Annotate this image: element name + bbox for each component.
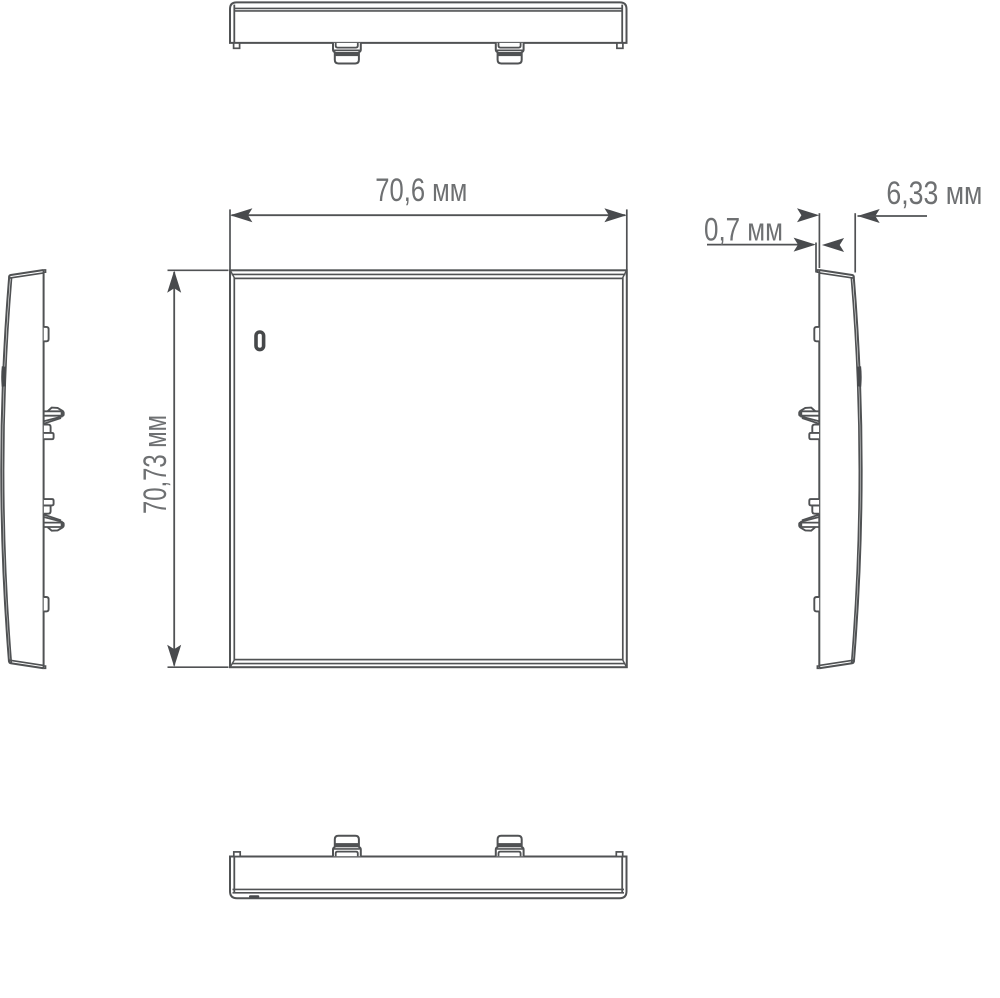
svg-text:6,33 мм: 6,33 мм bbox=[886, 175, 982, 211]
svg-text:70,73 мм: 70,73 мм bbox=[137, 415, 173, 514]
svg-text:0,7 мм: 0,7 мм bbox=[704, 211, 783, 247]
svg-text:70,6 мм: 70,6 мм bbox=[375, 172, 467, 208]
